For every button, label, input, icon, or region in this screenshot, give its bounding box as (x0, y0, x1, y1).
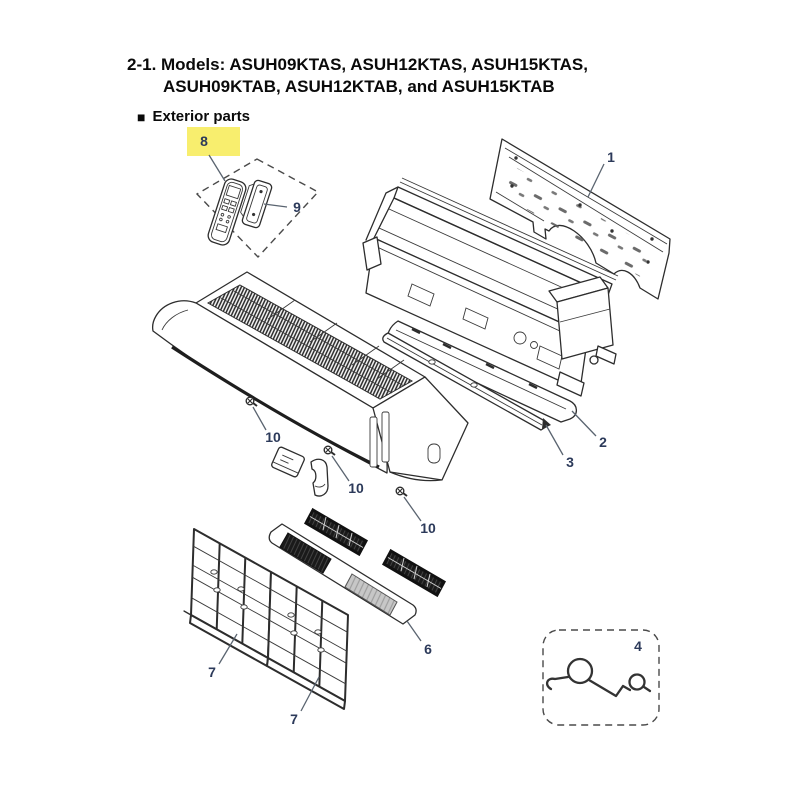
vent-cover-right (384, 551, 444, 595)
leader-line-part-6 (407, 621, 421, 641)
strip-end-clip (542, 418, 551, 429)
part-label-10: 10 (348, 480, 364, 496)
leader-line-part-10 (404, 497, 421, 521)
wire-spring-part (547, 659, 650, 696)
manual-page: 2-1. Models: ASUH09KTAS, ASUH12KTAS, ASU… (0, 0, 800, 800)
leader-line-part-1 (588, 164, 604, 197)
part-label-7: 7 (290, 711, 298, 727)
small-bracket (311, 459, 328, 496)
small-access-cover (271, 446, 306, 477)
air-filter-right (261, 572, 348, 709)
wall-mounting-plate (490, 139, 670, 299)
part-label-2: 2 (599, 434, 607, 450)
leader-line-part-10 (332, 456, 349, 481)
leader-line-part-3 (546, 425, 563, 455)
leader-line-part-2 (572, 411, 596, 436)
part-label-1: 1 (607, 149, 615, 165)
screw-icon (324, 446, 335, 455)
chassis-left-bracket (363, 237, 381, 270)
air-filter-left (184, 529, 271, 666)
part-label-3: 3 (566, 454, 574, 470)
leader-line-part-8 (209, 155, 225, 181)
leader-line-part-10 (253, 407, 266, 430)
leader-line-part-9 (264, 204, 287, 207)
side-louver-bar (382, 412, 389, 462)
side-louver-bar (370, 417, 377, 467)
exploded-diagram: 123467789101010 (0, 0, 800, 800)
part-label-9: 9 (293, 199, 301, 215)
part-label-10: 10 (420, 520, 436, 536)
screw-icon (396, 487, 407, 496)
part-label-8: 8 (200, 133, 208, 149)
part-label-4: 4 (634, 638, 642, 654)
part-label-6: 6 (424, 641, 432, 657)
highlight-part-8 (187, 127, 240, 156)
part-label-7: 7 (208, 664, 216, 680)
part-label-10: 10 (265, 429, 281, 445)
remote-control (206, 177, 247, 247)
